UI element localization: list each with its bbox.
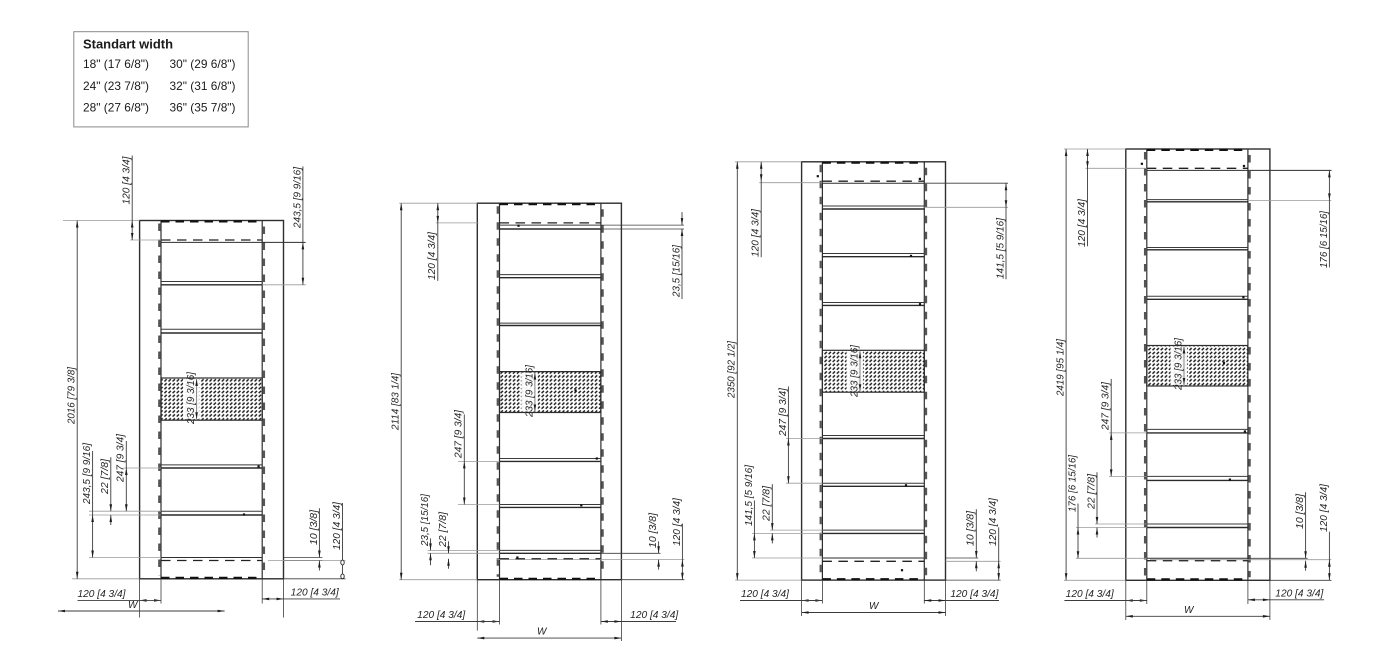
svg-text:2114 [83 1/4]: 2114 [83 1/4] <box>391 373 402 431</box>
svg-text:120 [4 3/4]: 120 [4 3/4] <box>417 610 465 621</box>
svg-text:22 [7/8]: 22 [7/8] <box>438 512 449 548</box>
svg-text:120 [4 3/4]: 120 [4 3/4] <box>672 498 683 546</box>
svg-text:10 [3/8]: 10 [3/8] <box>648 513 659 548</box>
svg-text:120 [4 3/4]: 120 [4 3/4] <box>630 610 678 621</box>
svg-text:120 [4 3/4]: 120 [4 3/4] <box>741 589 789 600</box>
svg-text:247 [9 3/4]: 247 [9 3/4] <box>778 388 789 437</box>
svg-text:W: W <box>869 601 880 612</box>
svg-text:120 [4 3/4]: 120 [4 3/4] <box>122 156 133 204</box>
svg-text:18" (17 6/8"): 18" (17 6/8") <box>83 57 149 71</box>
svg-text:233 [9 3/16]: 233 [9 3/16] <box>1173 338 1184 391</box>
svg-text:176 [6 15/16]: 176 [6 15/16] <box>1319 211 1330 268</box>
svg-text:2419 [95 1/4]: 2419 [95 1/4] <box>1056 339 1067 397</box>
svg-text:36" (35 7/8"): 36" (35 7/8") <box>170 101 236 115</box>
svg-text:2350 [92 1/2]: 2350 [92 1/2] <box>727 341 738 399</box>
svg-text:30" (29 6/8"): 30" (29 6/8") <box>170 57 236 71</box>
svg-text:2016 [79 3/8]: 2016 [79 3/8] <box>67 367 78 425</box>
svg-text:Standart width: Standart width <box>83 38 173 52</box>
svg-text:120 [4 3/4]: 120 [4 3/4] <box>1066 589 1114 600</box>
svg-text:W: W <box>1184 605 1195 616</box>
svg-text:120 [4 3/4]: 120 [4 3/4] <box>332 502 343 550</box>
svg-text:120 [4 3/4]: 120 [4 3/4] <box>291 588 339 599</box>
svg-text:32" (31 6/8"): 32" (31 6/8") <box>170 79 236 93</box>
svg-text:120 [4 3/4]: 120 [4 3/4] <box>988 498 999 546</box>
svg-text:22 [7/8]: 22 [7/8] <box>100 459 111 495</box>
svg-text:22 [7/8]: 22 [7/8] <box>1086 474 1097 510</box>
svg-text:10 [3/8]: 10 [3/8] <box>966 511 977 546</box>
svg-text:247 [9 3/4]: 247 [9 3/4] <box>454 410 465 459</box>
svg-text:233 [9 3/16]: 233 [9 3/16] <box>524 365 535 418</box>
svg-text:120 [4 3/4]: 120 [4 3/4] <box>1275 589 1323 600</box>
svg-text:W: W <box>128 600 139 611</box>
svg-text:243,5 [9 9/16]: 243,5 [9 9/16] <box>292 167 303 229</box>
svg-text:120 [4 3/4]: 120 [4 3/4] <box>950 589 998 600</box>
svg-text:120 [4 3/4]: 120 [4 3/4] <box>427 232 438 280</box>
svg-text:141,5 [5 9/16]: 141,5 [5 9/16] <box>995 218 1006 279</box>
svg-text:120 [4 3/4]: 120 [4 3/4] <box>1077 199 1088 247</box>
svg-text:120 [4 3/4]: 120 [4 3/4] <box>78 589 126 600</box>
svg-text:28" (27 6/8"): 28" (27 6/8") <box>83 101 149 115</box>
svg-text:233 [9 3/16]: 233 [9 3/16] <box>186 372 197 425</box>
svg-text:176 [6 15/16]: 176 [6 15/16] <box>1067 455 1078 512</box>
svg-text:10 [3/8]: 10 [3/8] <box>309 510 320 545</box>
svg-text:23,5 [15/16]: 23,5 [15/16] <box>671 245 682 298</box>
svg-text:23,5 [15/16]: 23,5 [15/16] <box>420 494 431 547</box>
svg-text:247 [9 3/4]: 247 [9 3/4] <box>116 434 127 483</box>
svg-text:24" (23 7/8"): 24" (23 7/8") <box>83 79 149 93</box>
svg-text:W: W <box>537 627 548 638</box>
svg-text:247 [9 3/4]: 247 [9 3/4] <box>1101 382 1112 431</box>
svg-text:22 [7/8]: 22 [7/8] <box>762 486 773 522</box>
svg-text:120 [4 3/4]: 120 [4 3/4] <box>1319 484 1330 532</box>
svg-text:243,5 [9 9/16]: 243,5 [9 9/16] <box>82 443 93 505</box>
svg-text:10 [3/8]: 10 [3/8] <box>1295 494 1306 529</box>
svg-text:233 [9 3/16]: 233 [9 3/16] <box>849 345 860 398</box>
svg-text:141,5 [5 9/16]: 141,5 [5 9/16] <box>744 465 755 526</box>
svg-text:120 [4 3/4]: 120 [4 3/4] <box>751 209 762 257</box>
